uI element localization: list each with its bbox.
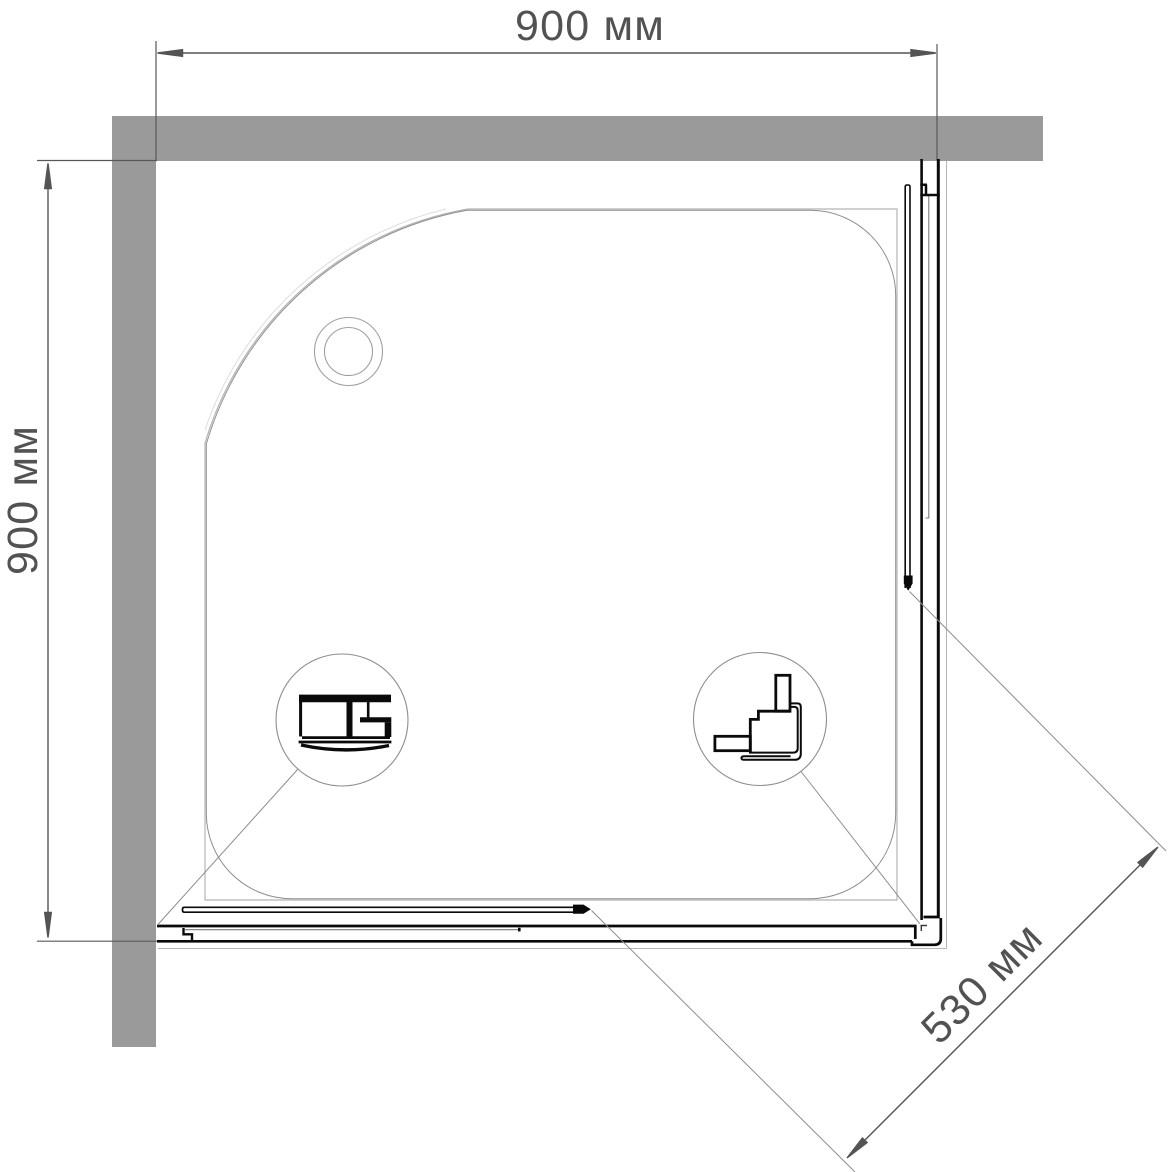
svg-text:900 мм: 900 мм <box>515 2 665 50</box>
svg-text:900 мм: 900 мм <box>0 425 47 575</box>
